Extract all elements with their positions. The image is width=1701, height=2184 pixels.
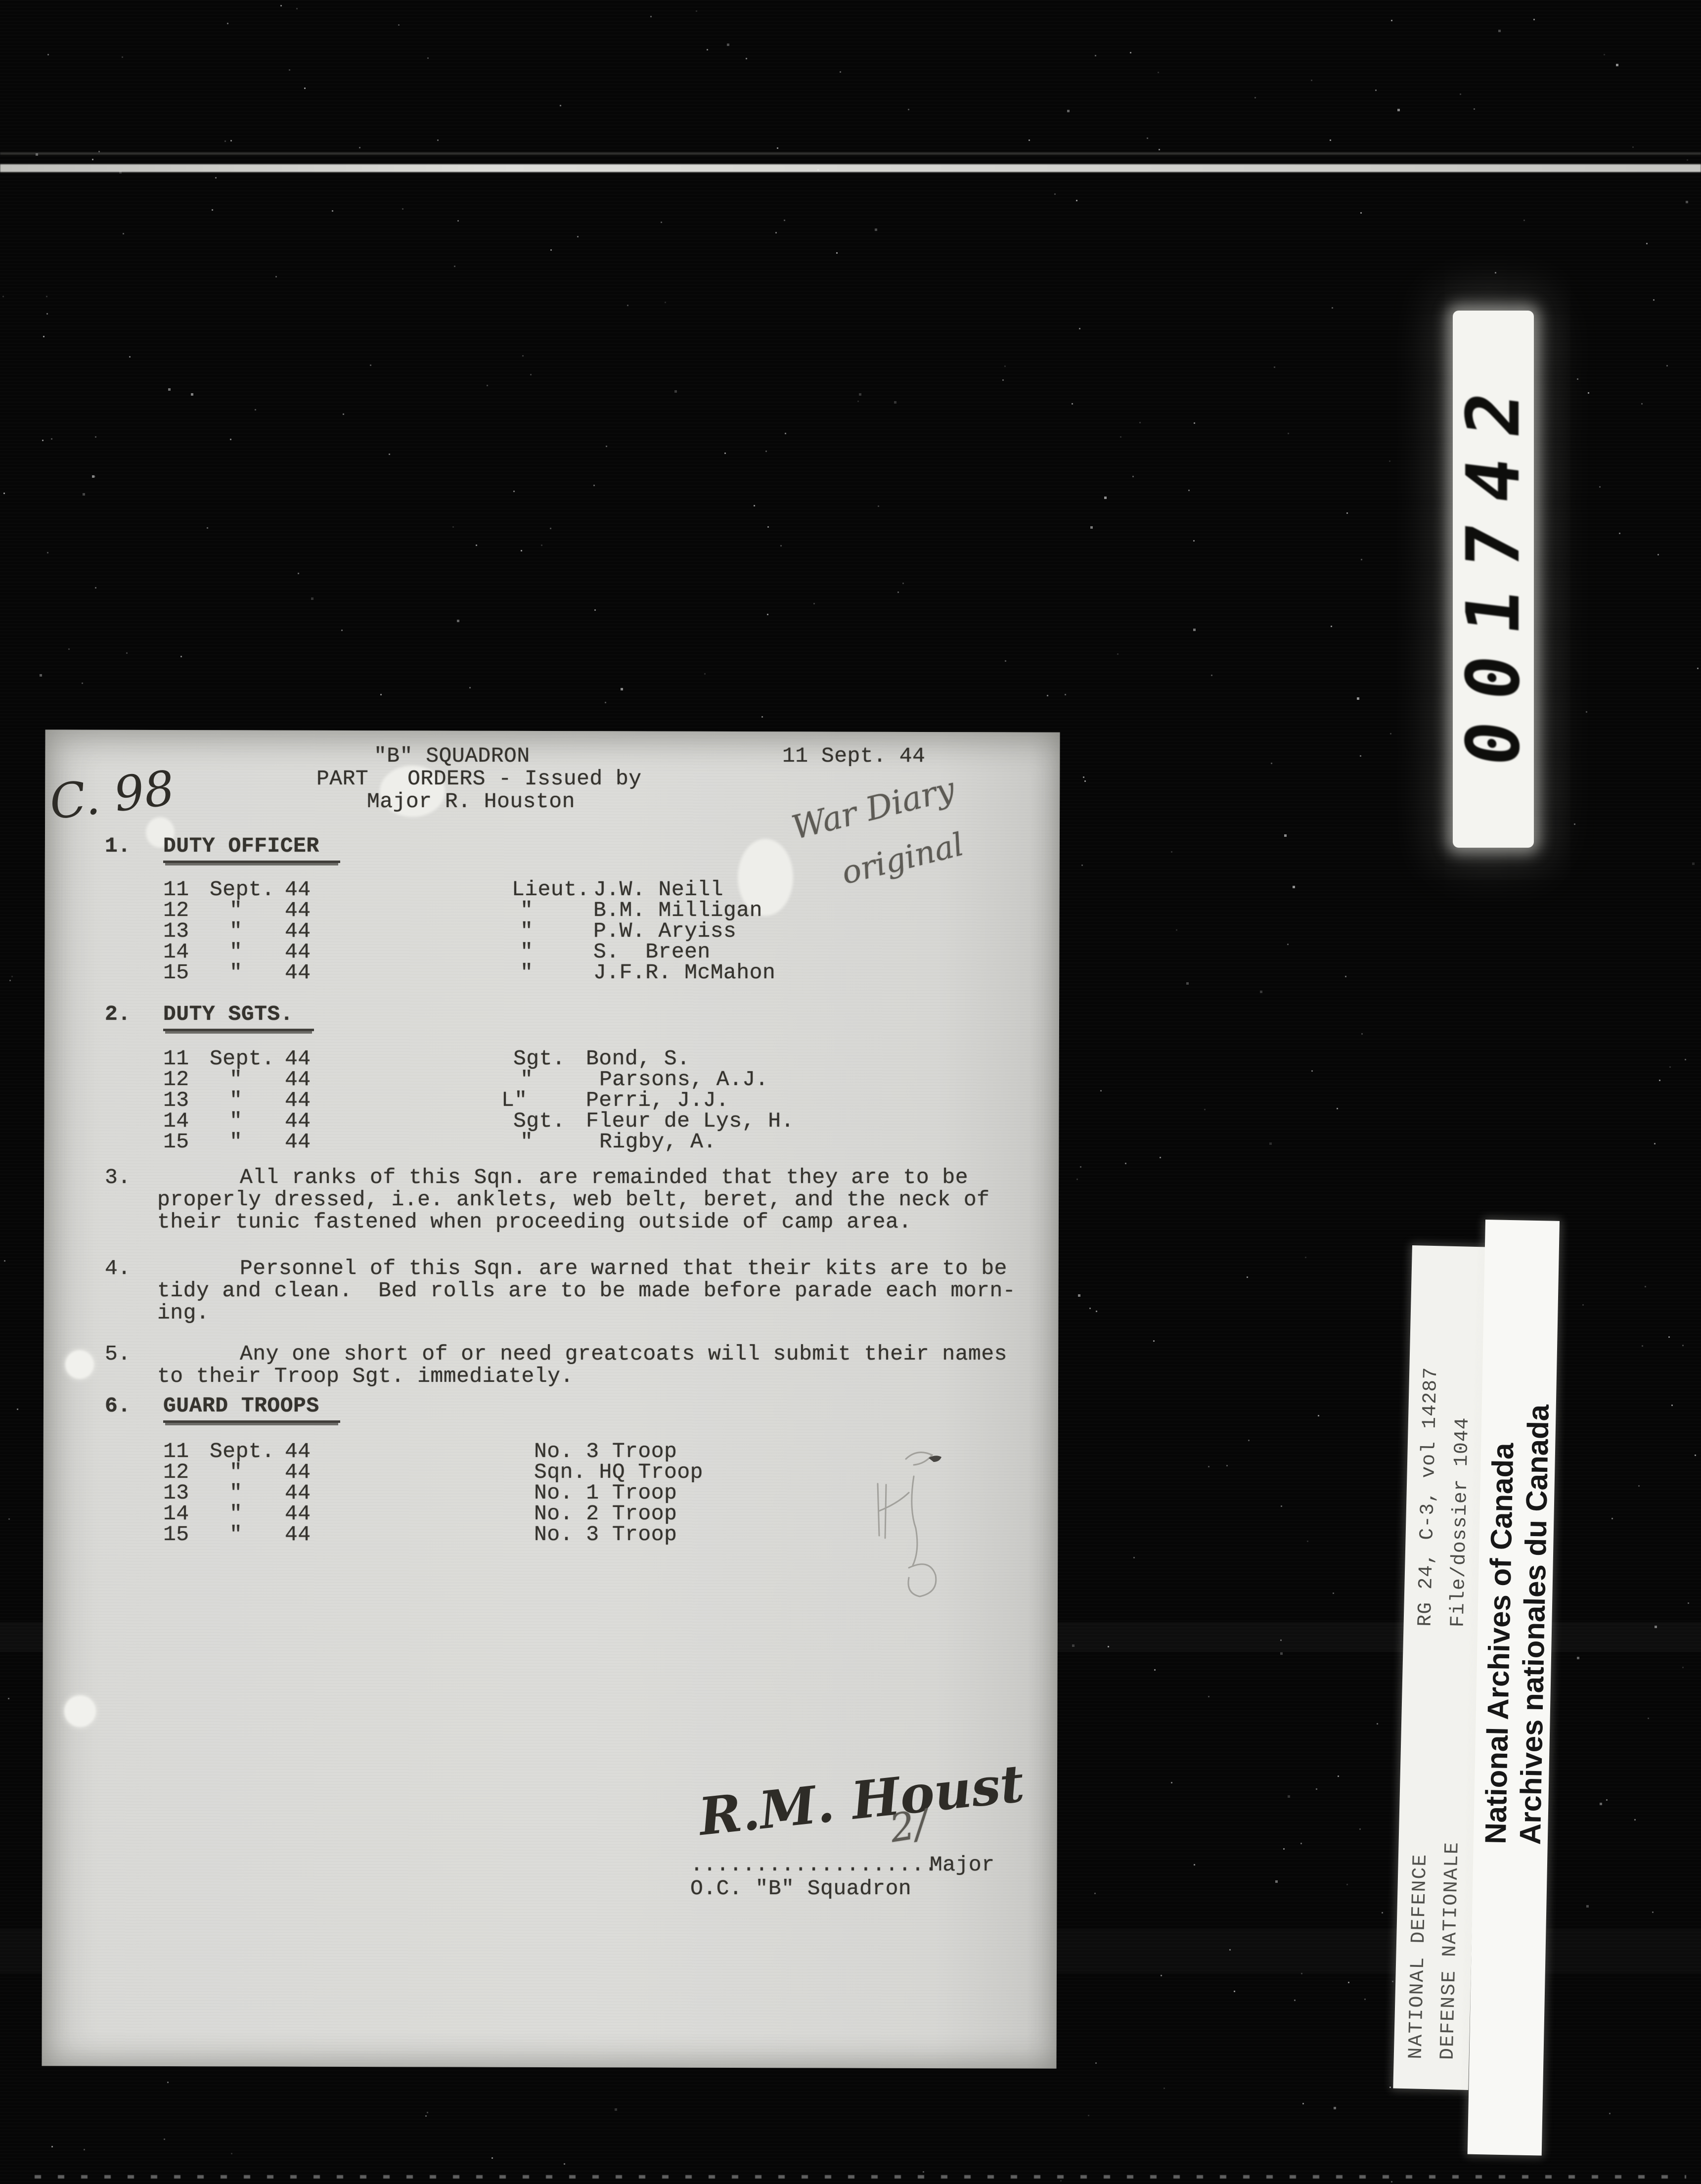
signature-dotted-line: ...................Major — [690, 1854, 938, 1876]
section-title: DUTY SGTS. — [163, 1003, 314, 1026]
hole-punch — [64, 1695, 96, 1727]
archives-line1: National Archives of Canada — [1479, 1443, 1520, 1844]
signature-oc-line: O.C. "B" Squadron — [690, 1877, 911, 1900]
counter-digits: 001742 — [1453, 311, 1534, 848]
section-number: 1. — [105, 835, 131, 858]
paragraph-line: their tunic fastened when proceeding out… — [157, 1211, 912, 1233]
national-archives-label: National Archives of Canada Archives nat… — [1478, 1265, 1559, 1845]
film-top-line-faint — [0, 152, 1701, 155]
section-title: DUTY OFFICER — [163, 835, 340, 858]
signature-overwrite: 2/ — [887, 1802, 931, 1852]
section-number: 4. — [105, 1257, 131, 1280]
national-defence-label: NATIONAL DEFENCE DEFENSE NATIONALE — [1401, 1826, 1470, 2060]
rg-line1: RG 24, C-3, vol 14287 — [1415, 1366, 1443, 1627]
rg-line2: File/dossier 1044 — [1447, 1417, 1475, 1628]
header-issuer: Major R. Houston — [367, 790, 575, 813]
archive-reference-label: RG 24, C-3, vol 14287 File/dossier 1044 — [1410, 1300, 1482, 1628]
paragraph-line: Personnel of this Sqn. are warned that t… — [240, 1257, 1007, 1280]
defence-line2: DEFENSE NATIONALE — [1437, 1841, 1464, 2060]
film-bottom-perforation-line — [35, 2175, 1686, 2179]
archives-line2: Archives nationales du Canada — [1514, 1404, 1555, 1845]
pencil-scribble — [850, 1429, 979, 1607]
film-top-line-bright — [0, 164, 1701, 172]
paragraph-line: properly dressed, i.e. anklets, web belt… — [157, 1188, 989, 1211]
paragraph-line: ing. — [157, 1302, 209, 1324]
section-title: GUARD TROOPS — [163, 1395, 340, 1417]
header-orders-line: PART ORDERS - Issued by — [316, 768, 642, 790]
section-number: 2. — [105, 1003, 131, 1026]
paragraph-line: to their Troop Sgt. immediately. — [157, 1365, 574, 1388]
header-date: 11 Sept. 44 — [782, 745, 925, 768]
microfilm-frame: 001742 RG 24, C-3, vol 14287 File/dossie… — [0, 0, 1701, 2184]
section-number: 3. — [105, 1166, 131, 1189]
paragraph-line: Any one short of or need greatcoats will… — [240, 1343, 1007, 1365]
signature-rank: Major — [930, 1854, 995, 1876]
paragraph-line: tidy and clean. Bed rolls are to be made… — [157, 1279, 1016, 1302]
header-squadron: "B" SQUADRON — [374, 745, 530, 768]
paragraph-line: All ranks of this Sqn. are remainded tha… — [240, 1166, 968, 1189]
defence-line1: NATIONAL DEFENCE — [1405, 1853, 1432, 2059]
hole-punch — [65, 1350, 94, 1379]
microfilm-frame-counter: 001742 — [1453, 311, 1534, 848]
counter-value: 001742 — [1451, 365, 1536, 793]
film-speckles — [0, 0, 0, 0]
section-number: 6. — [105, 1395, 131, 1417]
section-number: 5. — [105, 1343, 131, 1365]
